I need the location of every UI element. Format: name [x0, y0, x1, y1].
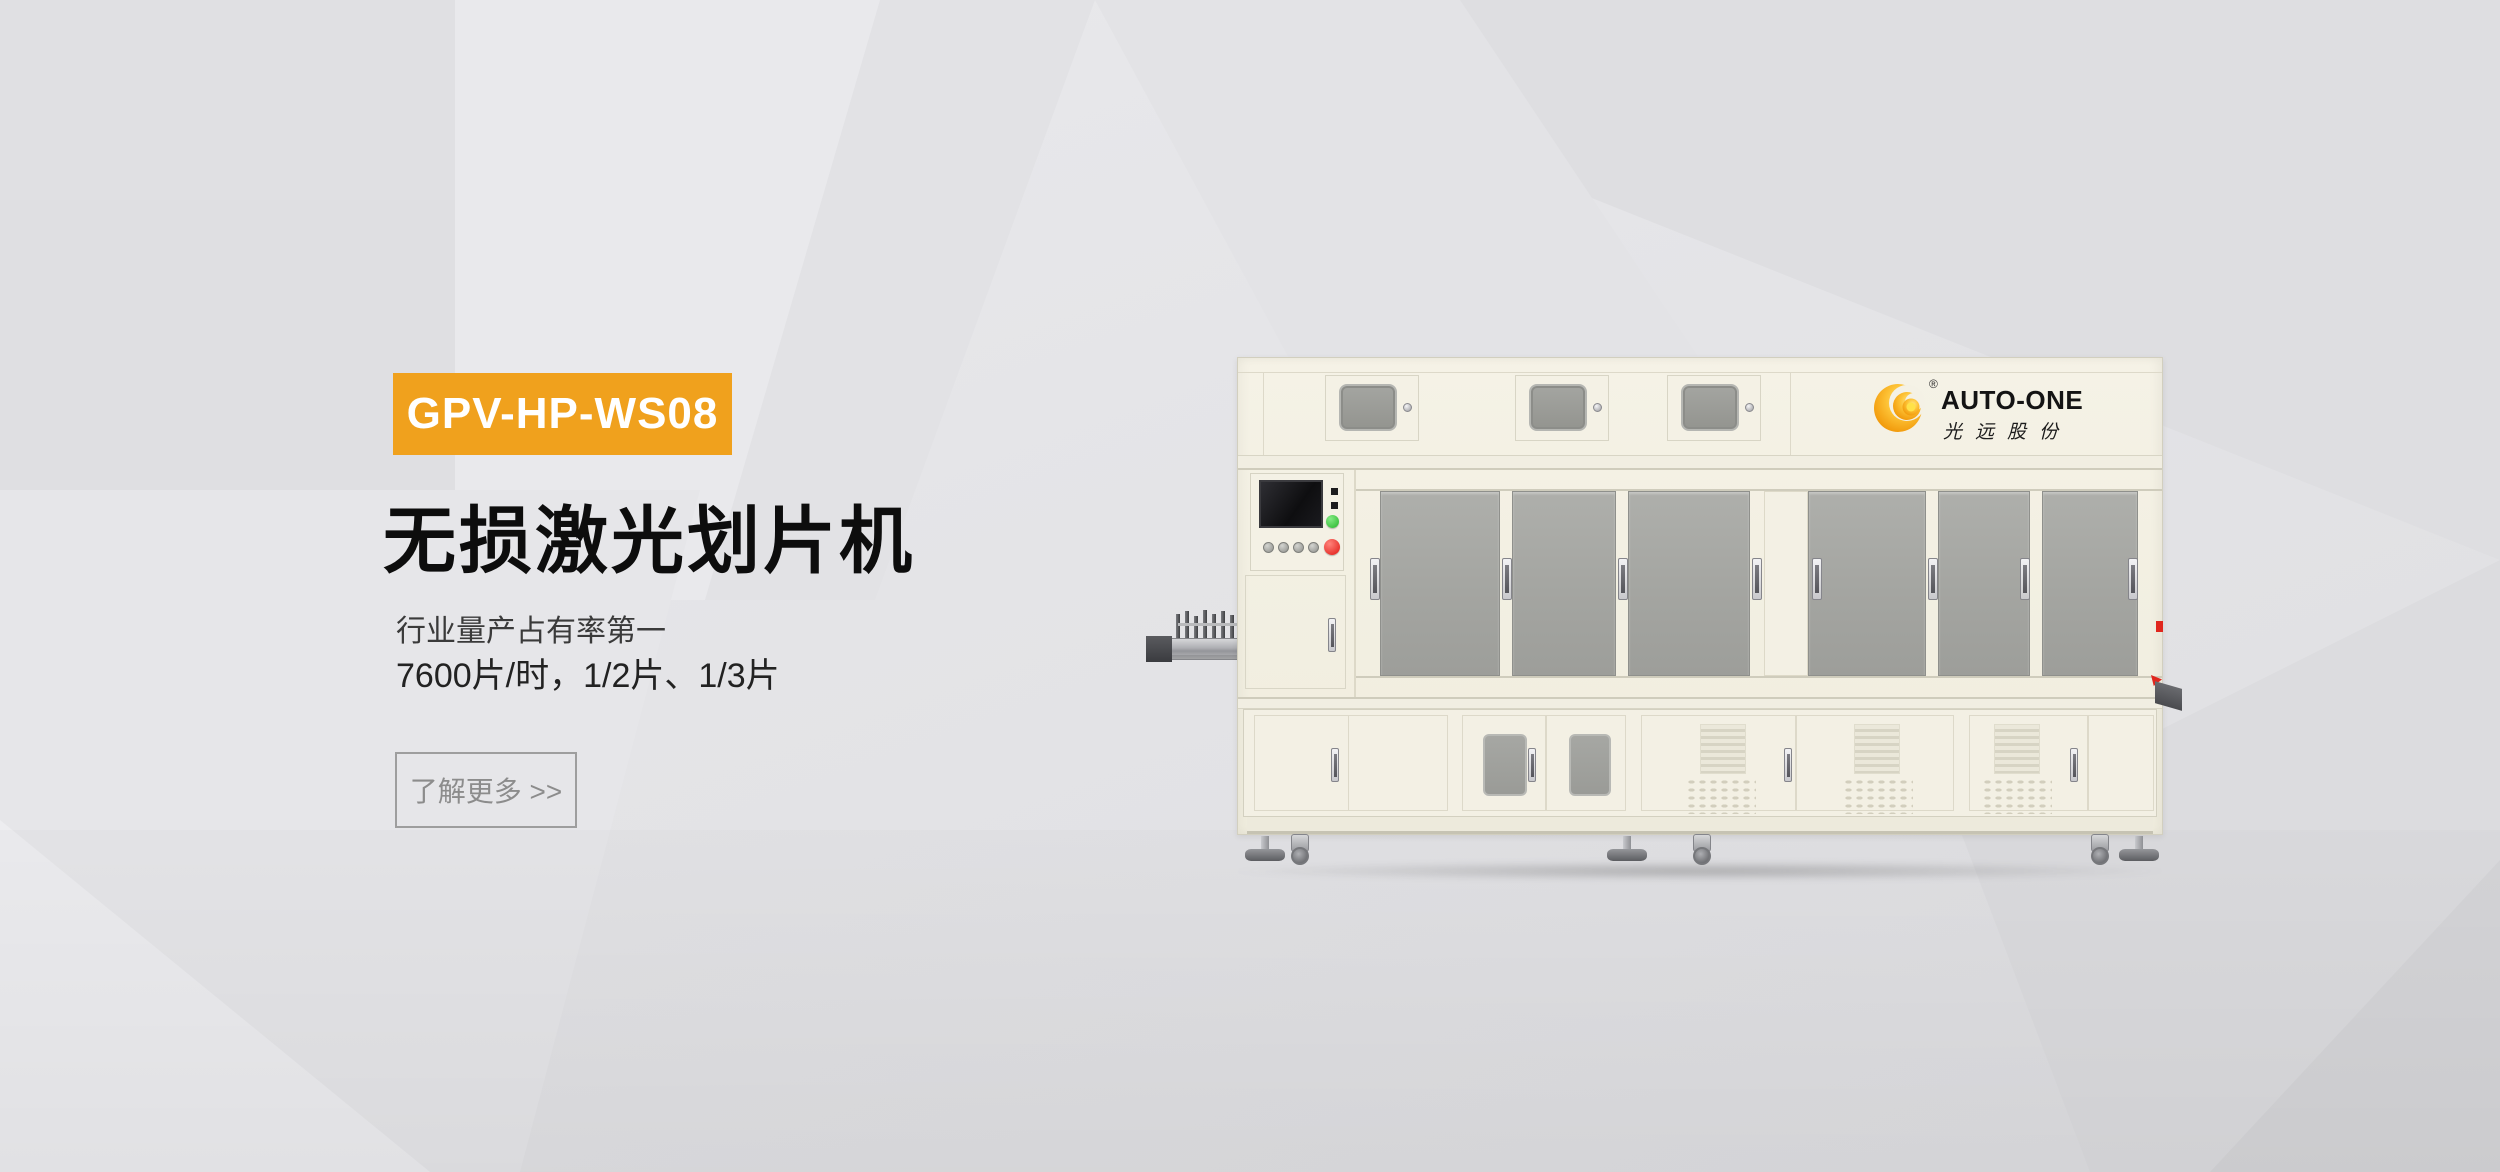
caster-roller — [1693, 847, 1711, 865]
conveyor-pin — [1212, 614, 1216, 638]
cabinet-door — [2088, 715, 2154, 811]
door-handle — [2128, 558, 2138, 600]
dot-vent — [1982, 778, 2052, 814]
handle-slot — [1755, 565, 1759, 593]
cabinet-door — [1254, 715, 1448, 811]
header-window-panel — [1667, 375, 1761, 441]
caster-roller — [1291, 847, 1309, 865]
sliding-door-zone — [1356, 470, 2162, 697]
header-divider — [1263, 373, 1264, 455]
cabinet-door — [1245, 575, 1346, 689]
foot-base — [2119, 849, 2159, 861]
handle-slot — [1505, 565, 1509, 593]
sliding-door-pane — [1512, 491, 1616, 676]
window-glass — [1529, 384, 1587, 431]
caster-wheel — [1287, 834, 1313, 868]
product-title: 无损激光划片机 — [383, 482, 915, 588]
handle-slot — [1373, 565, 1377, 593]
indicator-light — [1331, 502, 1338, 509]
foot-base — [1607, 849, 1647, 861]
foot-stem — [1623, 836, 1631, 850]
window-glass — [1681, 384, 1739, 431]
panel-knob — [1593, 403, 1602, 412]
machine-small-button — [1308, 542, 1319, 553]
louver-vent — [1854, 724, 1900, 774]
brand-logo: ® AUTO-ONE 光远股份 — [1797, 373, 2147, 453]
cabinet-handle — [1331, 748, 1339, 782]
floor-shading — [0, 830, 2500, 1172]
foot-base — [1245, 849, 1285, 861]
conveyor-pin — [1194, 616, 1198, 638]
leveling-foot — [2119, 836, 2159, 863]
machine-conveyor — [1146, 610, 1250, 666]
header-bottom-band — [1238, 455, 2162, 470]
handle-slot — [1331, 624, 1334, 647]
sliding-door-pane — [1938, 491, 2030, 676]
door-pillar — [1764, 491, 1808, 676]
product-subtitle-line1: 行业量产占有率第一 — [396, 606, 666, 650]
cabinet-handle — [1528, 748, 1536, 782]
red-indicator-tab — [2156, 621, 2163, 632]
dot-vent — [1843, 778, 1913, 814]
machine-small-button — [1293, 542, 1304, 553]
sliding-door-pane — [2042, 491, 2138, 676]
cabinet-window — [1483, 734, 1527, 796]
door-top-rail — [1356, 470, 2162, 491]
cabinet-door — [1641, 715, 1796, 811]
machine-illustration: ® AUTO-ONE 光远股份 — [1237, 357, 2163, 877]
handle-slot — [1531, 754, 1534, 777]
caster-wheel — [1689, 834, 1715, 868]
foot-stem — [2135, 836, 2143, 850]
sliding-door-pane — [1380, 491, 1500, 676]
door-handle — [1752, 558, 1762, 600]
cabinet-door-split — [1348, 715, 1349, 811]
caster-wheel — [2087, 834, 2113, 868]
caster-roller — [2091, 847, 2109, 865]
header-window-panel — [1515, 375, 1609, 441]
conveyor-pin — [1176, 614, 1180, 638]
machine-red-button — [1324, 539, 1340, 555]
handle-slot — [2073, 754, 2076, 777]
door-bottom-rail — [1356, 676, 2162, 697]
cabinet-window — [1569, 734, 1611, 796]
door-handle — [1928, 558, 1938, 600]
conveyor-crossbar — [1178, 623, 1244, 626]
brand-name-en: AUTO-ONE — [1941, 385, 2083, 416]
door-handle — [1502, 558, 1512, 600]
sliding-door-pane — [1808, 491, 1926, 676]
door-handle — [2020, 558, 2030, 600]
base-cabinets — [1243, 709, 2157, 817]
panel-knob — [1403, 403, 1412, 412]
louver-vent — [1994, 724, 2040, 774]
logo-swirl-icon — [1873, 377, 1929, 437]
door-handle — [1618, 558, 1628, 600]
machine-plinth — [1247, 817, 2153, 834]
indicator-light — [1331, 488, 1338, 495]
header-divider — [1790, 373, 1791, 455]
header-window-panel — [1325, 375, 1419, 441]
machine-small-button — [1278, 542, 1289, 553]
leveling-foot — [1245, 836, 1285, 863]
handle-slot — [1787, 754, 1790, 777]
dot-vent — [1686, 778, 1756, 814]
learn-more-button[interactable]: 了解更多 >> — [395, 752, 577, 828]
door-handle — [1812, 558, 1822, 600]
trademark-symbol: ® — [1929, 377, 1938, 391]
leveling-foot — [1607, 836, 1647, 863]
cabinet-handle — [1784, 748, 1792, 782]
handle-slot — [2023, 565, 2027, 593]
door-handle — [1328, 618, 1336, 652]
control-screen — [1259, 480, 1323, 528]
cabinet-door — [1546, 715, 1626, 811]
panel-knob — [1745, 403, 1754, 412]
window-glass — [1339, 384, 1397, 431]
machine-green-button — [1326, 515, 1339, 528]
handle-slot — [1334, 754, 1337, 777]
cabinet-handle — [2070, 748, 2078, 782]
brand-name-cn: 光远股份 — [1943, 417, 2071, 444]
door-handle — [1370, 558, 1380, 600]
model-badge: GPV-HP-WS08 — [393, 373, 732, 455]
product-subtitle-line2: 7600片/时，1/2片、1/3片 — [396, 648, 780, 697]
sliding-door-pane — [1628, 491, 1750, 676]
conveyor-pin — [1230, 615, 1234, 638]
handle-slot — [1815, 565, 1819, 593]
handle-slot — [1931, 565, 1935, 593]
louver-vent — [1700, 724, 1746, 774]
hero-banner: GPV-HP-WS08 无损激光划片机 行业量产占有率第一 7600片/时，1/… — [0, 0, 2500, 1172]
handle-slot — [2131, 565, 2135, 593]
machine-small-button — [1263, 542, 1274, 553]
foot-stem — [1261, 836, 1269, 850]
cabinet-door — [1796, 715, 1954, 811]
handle-slot — [1621, 565, 1625, 593]
base-divider-band — [1238, 697, 2162, 709]
conveyor-endcap — [1146, 636, 1172, 662]
